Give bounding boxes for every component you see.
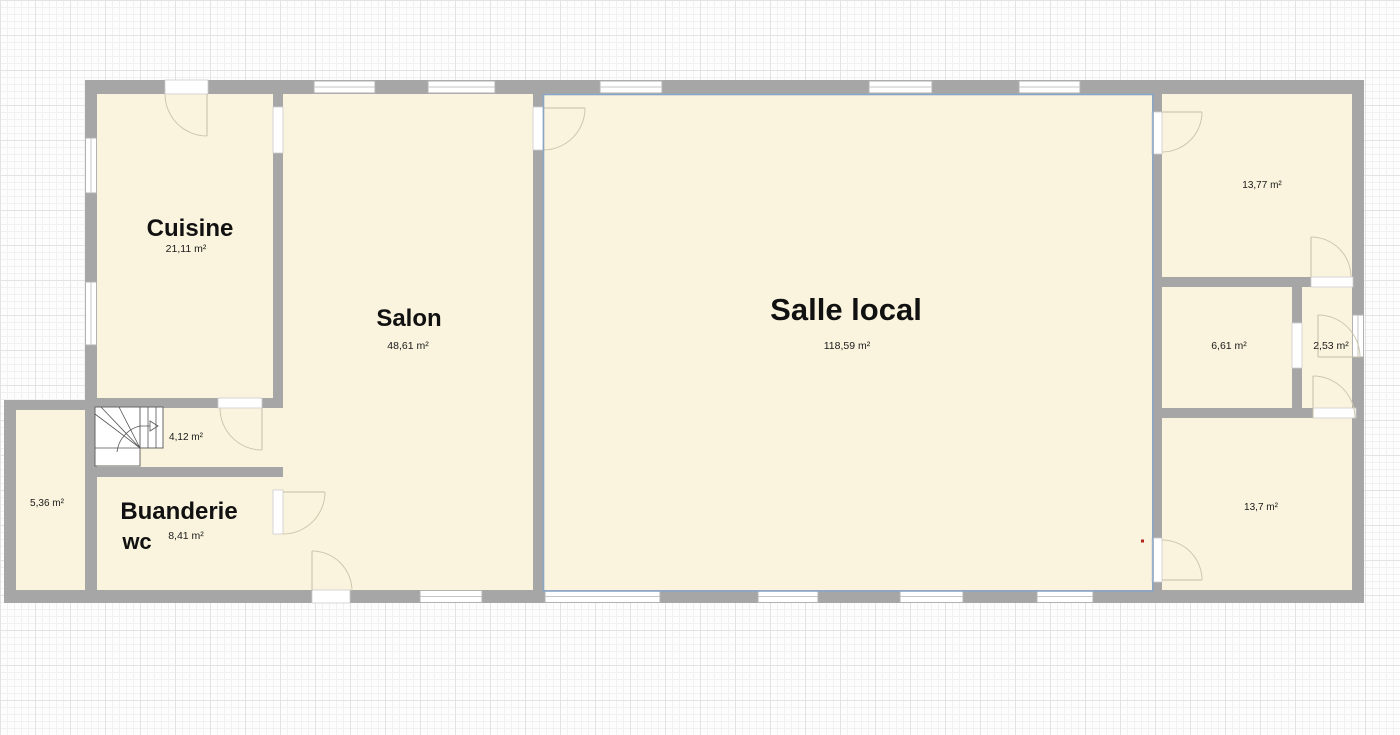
- window-top-2[interactable]: [428, 81, 495, 93]
- window-top-3[interactable]: [600, 81, 662, 93]
- window-bottom-5[interactable]: [1037, 591, 1093, 603]
- wall-buanderie-top[interactable]: [85, 467, 283, 477]
- label-buanderie-wc: wc: [121, 529, 151, 554]
- window-bottom-4[interactable]: [900, 591, 963, 603]
- window-left-2[interactable]: [86, 282, 97, 345]
- area-room-ne: 13,77 m²: [1242, 180, 1282, 191]
- window-top-1[interactable]: [314, 81, 375, 93]
- area-stair-hall: 4,12 m²: [169, 432, 204, 443]
- wall-annex-top[interactable]: [4, 400, 97, 410]
- area-annex: 5,36 m²: [30, 498, 65, 509]
- label-buanderie: Buanderie: [120, 498, 237, 525]
- area-salon: 48,61 m²: [387, 340, 429, 352]
- window-bottom-3[interactable]: [758, 591, 818, 603]
- area-room-se: 13,7 m²: [1244, 502, 1279, 513]
- area-salle-local: 118,59 m²: [824, 340, 871, 352]
- label-salle-local: Salle local: [770, 292, 922, 327]
- opening-cuisine-salon[interactable]: [273, 107, 283, 153]
- area-buanderie: 8,41 m²: [168, 530, 204, 542]
- window-left-1[interactable]: [86, 138, 97, 193]
- window-top-4[interactable]: [869, 81, 932, 93]
- wall-salon-salle[interactable]: [533, 80, 543, 603]
- label-salon: Salon: [376, 305, 441, 332]
- window-bottom-1[interactable]: [420, 591, 482, 603]
- wall-annex-left[interactable]: [4, 400, 16, 603]
- floorplan-canvas[interactable]: Cuisine 21,11 m² Salon 48,61 m² Salle lo…: [0, 0, 1400, 735]
- label-cuisine: Cuisine: [147, 215, 234, 242]
- area-entry-east: 2,53 m²: [1313, 340, 1349, 352]
- area-hall-east: 6,61 m²: [1211, 340, 1247, 352]
- window-bottom-2[interactable]: [545, 591, 660, 603]
- window-top-5[interactable]: [1019, 81, 1080, 93]
- area-cuisine: 21,11 m²: [166, 243, 207, 255]
- opening-hall-entry-east[interactable]: [1292, 323, 1302, 368]
